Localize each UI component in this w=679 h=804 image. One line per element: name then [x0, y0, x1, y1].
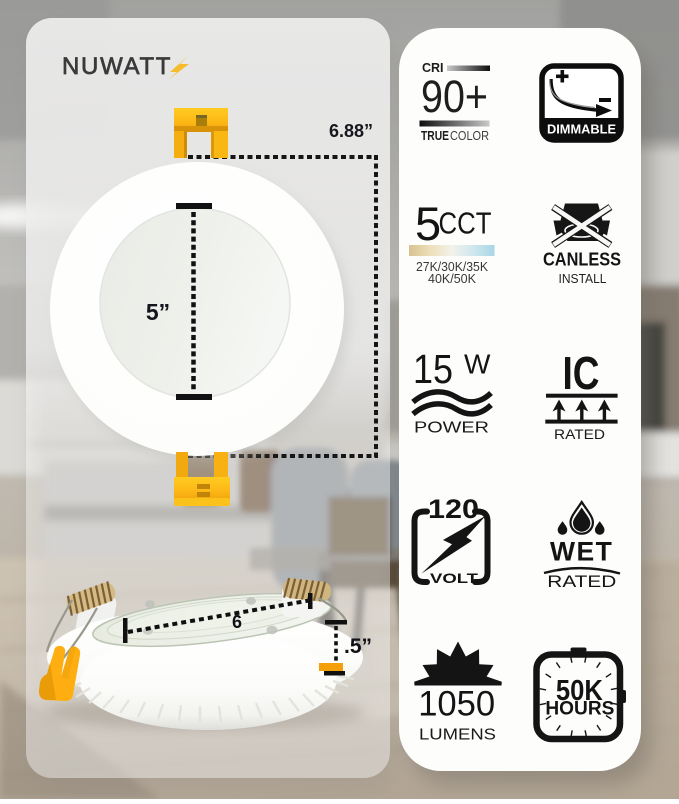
svg-text:IC: IC [563, 347, 600, 399]
svg-text:6.88”: 6.88” [329, 121, 373, 141]
svg-text:6: 6 [232, 612, 242, 632]
svg-text:VOLT: VOLT [430, 570, 479, 586]
svg-text:RATED: RATED [554, 426, 605, 442]
svg-text:INSTALL: INSTALL [559, 271, 607, 286]
svg-text:DIMMABLE: DIMMABLE [547, 123, 616, 137]
svg-text:5”: 5” [146, 299, 170, 325]
svg-text:CANLESS: CANLESS [543, 250, 621, 270]
svg-text:.5”: .5” [344, 635, 372, 658]
svg-text:RATED: RATED [547, 572, 616, 591]
svg-text:WET: WET [550, 537, 613, 567]
svg-text:CCT: CCT [439, 206, 492, 241]
svg-text:40K/50K: 40K/50K [428, 272, 477, 286]
svg-text:90+: 90+ [421, 71, 488, 122]
svg-text:1050: 1050 [418, 685, 495, 724]
svg-text:COLOR: COLOR [450, 128, 489, 143]
svg-text:5: 5 [415, 197, 441, 250]
svg-text:15: 15 [413, 346, 453, 392]
svg-text:LUMENS: LUMENS [419, 727, 496, 744]
svg-text:120: 120 [428, 494, 479, 524]
svg-text:NUWATT: NUWATT [62, 53, 172, 80]
svg-text:HOURS: HOURS [545, 699, 614, 720]
svg-text:POWER: POWER [414, 420, 489, 437]
svg-text:W: W [464, 349, 491, 380]
svg-text:TRUE: TRUE [421, 128, 449, 143]
